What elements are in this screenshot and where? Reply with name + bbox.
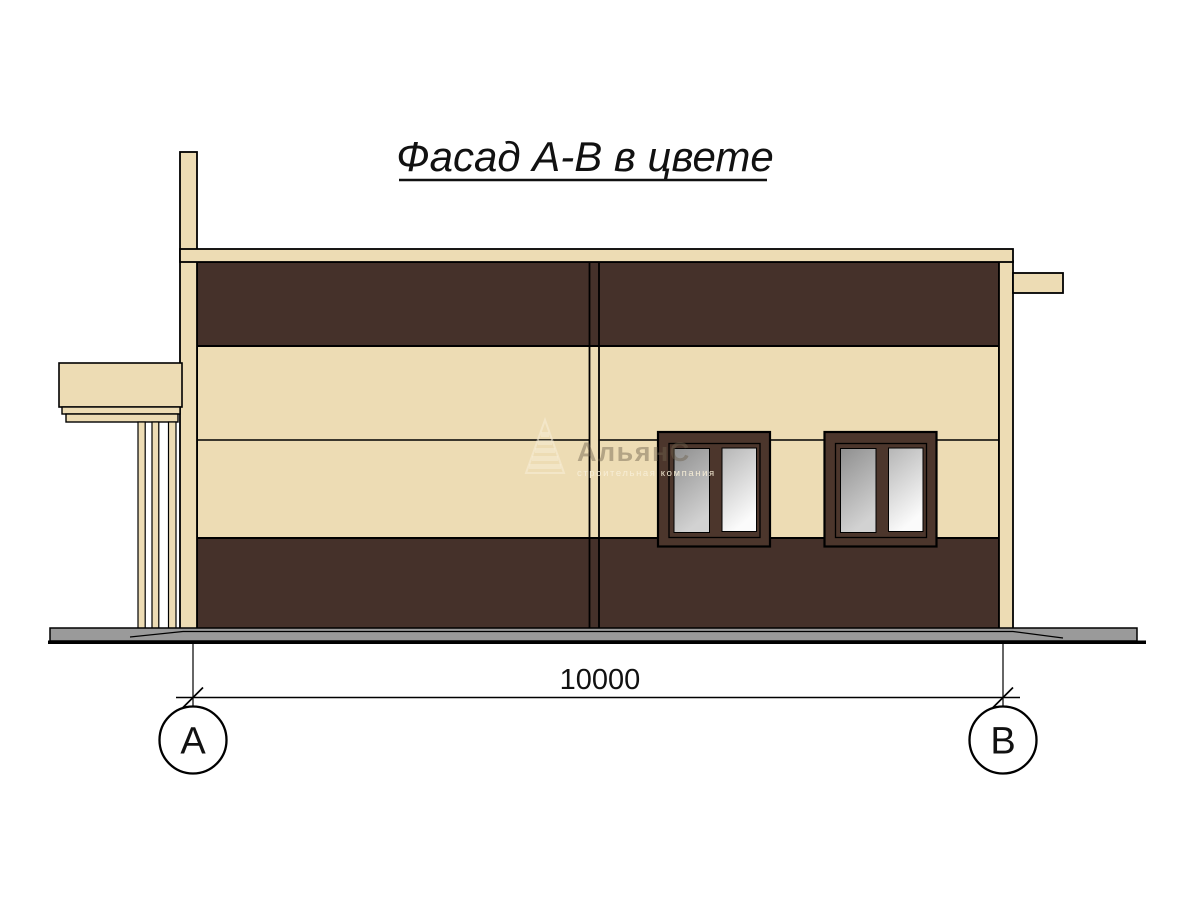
canopy-fascia-strip-2 [66,414,178,422]
window-right-pane-right [889,448,924,532]
porch-post-1 [138,422,145,631]
facade-elevation-svg: Фасад А-В в цвете [0,0,1200,900]
porch-post-3 [169,422,177,631]
roof-fascia-band [180,249,1013,262]
facade-drawing-sheet: Фасад А-В в цвете [0,0,1200,900]
ground-baseline [48,641,1146,645]
ground [48,628,1146,644]
watermark-company-name: АльянС [577,437,691,467]
canopy-roof [59,363,182,407]
ground-slab [50,628,1137,641]
pyramid-bar [529,464,561,469]
band-upper-cream [197,346,999,440]
band-bottom-brown [197,538,999,631]
dimension-value: 10000 [560,664,641,696]
window-right [825,432,937,547]
axis-letter-left: А [180,721,206,763]
drawing-title: Фасад А-В в цвете [396,133,774,180]
corner-board-right [999,261,1013,631]
axis-letter-right: В [990,721,1015,763]
canopy-fascia-strip-1 [62,407,180,414]
protruding-beam-right [1013,273,1063,293]
pyramid-bar [541,432,549,437]
pyramid-bar [535,448,555,453]
watermark-tagline: строительная компания [577,468,716,479]
pyramid-bar [532,456,558,461]
band-top-brown [197,262,999,346]
porch-post-2 [152,422,159,631]
window-left-pane-right [722,448,757,532]
window-right-pane-left [841,449,877,533]
pyramid-bar [538,440,552,445]
